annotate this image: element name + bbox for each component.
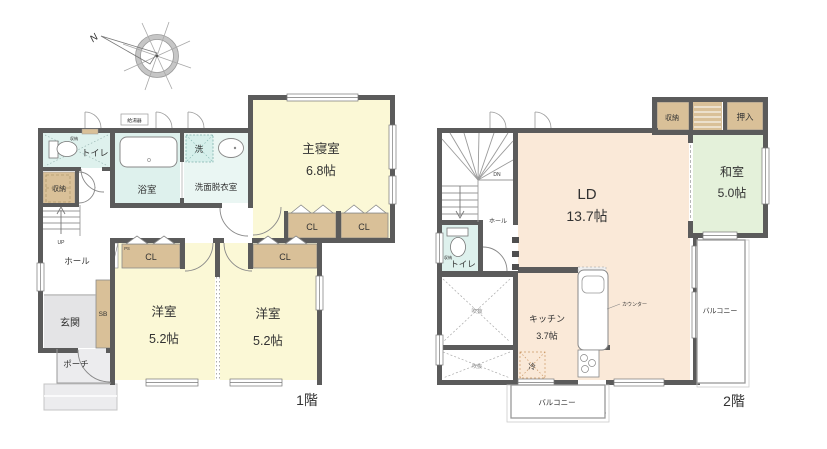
floor2-plan: LD 13.7帖 キッチン 3.7帖 和室 5.0帖 押入 収納 トイレ 収納 … — [436, 97, 769, 422]
toilet-1f-label: トイレ — [81, 148, 108, 158]
western-1-size: 5.2帖 — [149, 331, 179, 346]
stove-icon — [578, 350, 599, 377]
sliding-partition — [689, 143, 692, 221]
floor1-title: 1階 — [296, 392, 318, 408]
closet-w1-label: CL — [145, 252, 157, 262]
partition-dotted-line — [217, 277, 220, 379]
water-heater: 給湯器 — [121, 114, 148, 125]
bathroom-label: 浴室 — [137, 184, 156, 196]
master-bedroom-label: 主寝室 — [302, 141, 340, 156]
japanese-room-size: 5.0帖 — [718, 185, 747, 200]
oshiire-label: 押入 — [736, 112, 754, 122]
closet-w2-label: CL — [279, 252, 291, 262]
hall-2f-label: ホール — [489, 218, 507, 225]
floor2-title: 2階 — [723, 393, 745, 409]
sink-icon-1f — [219, 139, 244, 158]
stairs-down-2f — [442, 133, 513, 222]
toilet-shelf-1f — [82, 129, 98, 134]
entrance-label: 玄関 — [60, 316, 80, 329]
living-dining-size: 13.7帖 — [566, 208, 607, 224]
compass: N — [88, 22, 191, 90]
floorplan-svg: N — [0, 0, 827, 449]
floor1-plan: 給湯器 — [37, 94, 396, 410]
stairs-up-label: UP — [58, 240, 66, 246]
shoe-box-label: SB — [99, 311, 108, 318]
western-2-size: 5.2帖 — [253, 333, 283, 348]
kitchen-sink-icon — [582, 276, 604, 293]
porch-label: ポーチ — [63, 359, 89, 369]
pipe-space-label: PS — [124, 246, 130, 251]
western-1-label: 洋室 — [151, 304, 176, 319]
balcony-bottom-label: バルコニー — [538, 398, 575, 407]
toilet-icon-1f — [49, 141, 77, 158]
toilet-2f-label: トイレ — [450, 259, 476, 269]
hall-1f-label: ホール — [64, 256, 90, 266]
japanese-room-label: 和室 — [720, 164, 744, 179]
stairs-up-1f — [43, 205, 80, 236]
bath-sliding-door — [180, 162, 184, 198]
closet-m2-label: CL — [358, 222, 370, 232]
washer-label: 洗 — [195, 144, 204, 154]
rail-posts — [512, 237, 519, 270]
western-2-label: 洋室 — [255, 306, 280, 321]
kitchen-size: 3.7帖 — [536, 330, 558, 341]
water-heater-label: 給湯器 — [127, 117, 142, 124]
refrigerator-label: 冷 — [528, 361, 536, 371]
void-2-label: 吹抜 — [472, 363, 482, 370]
porch-steps — [44, 384, 117, 410]
kitchen-label: キッチン — [529, 314, 565, 324]
stairs-down-label: DN — [493, 172, 501, 178]
toilet-shelf-2f-label: 収納 — [444, 254, 452, 261]
laundry-label: 洗面脱衣室 — [195, 182, 238, 192]
toilet-shelf-1f-label: 収納 — [70, 135, 78, 142]
floor2-casement-windows — [490, 112, 551, 128]
storage-1f-label: 収納 — [52, 184, 66, 193]
void-1-label: 吹抜 — [471, 307, 483, 315]
attic-ladder-hatch — [693, 102, 722, 130]
compass-north-label: N — [88, 31, 101, 45]
closet-m1-label: CL — [306, 222, 318, 232]
master-bedroom-size: 6.8帖 — [306, 163, 336, 178]
room-japanese — [693, 135, 763, 233]
counter-label: カウンター — [622, 301, 647, 308]
living-dining-label: LD — [577, 186, 596, 203]
storage-2f-label: 収納 — [665, 113, 679, 122]
balcony-right-label: バルコニー — [703, 307, 738, 315]
bathtub-icon — [120, 137, 177, 167]
floorplan-image: N — [0, 0, 827, 449]
